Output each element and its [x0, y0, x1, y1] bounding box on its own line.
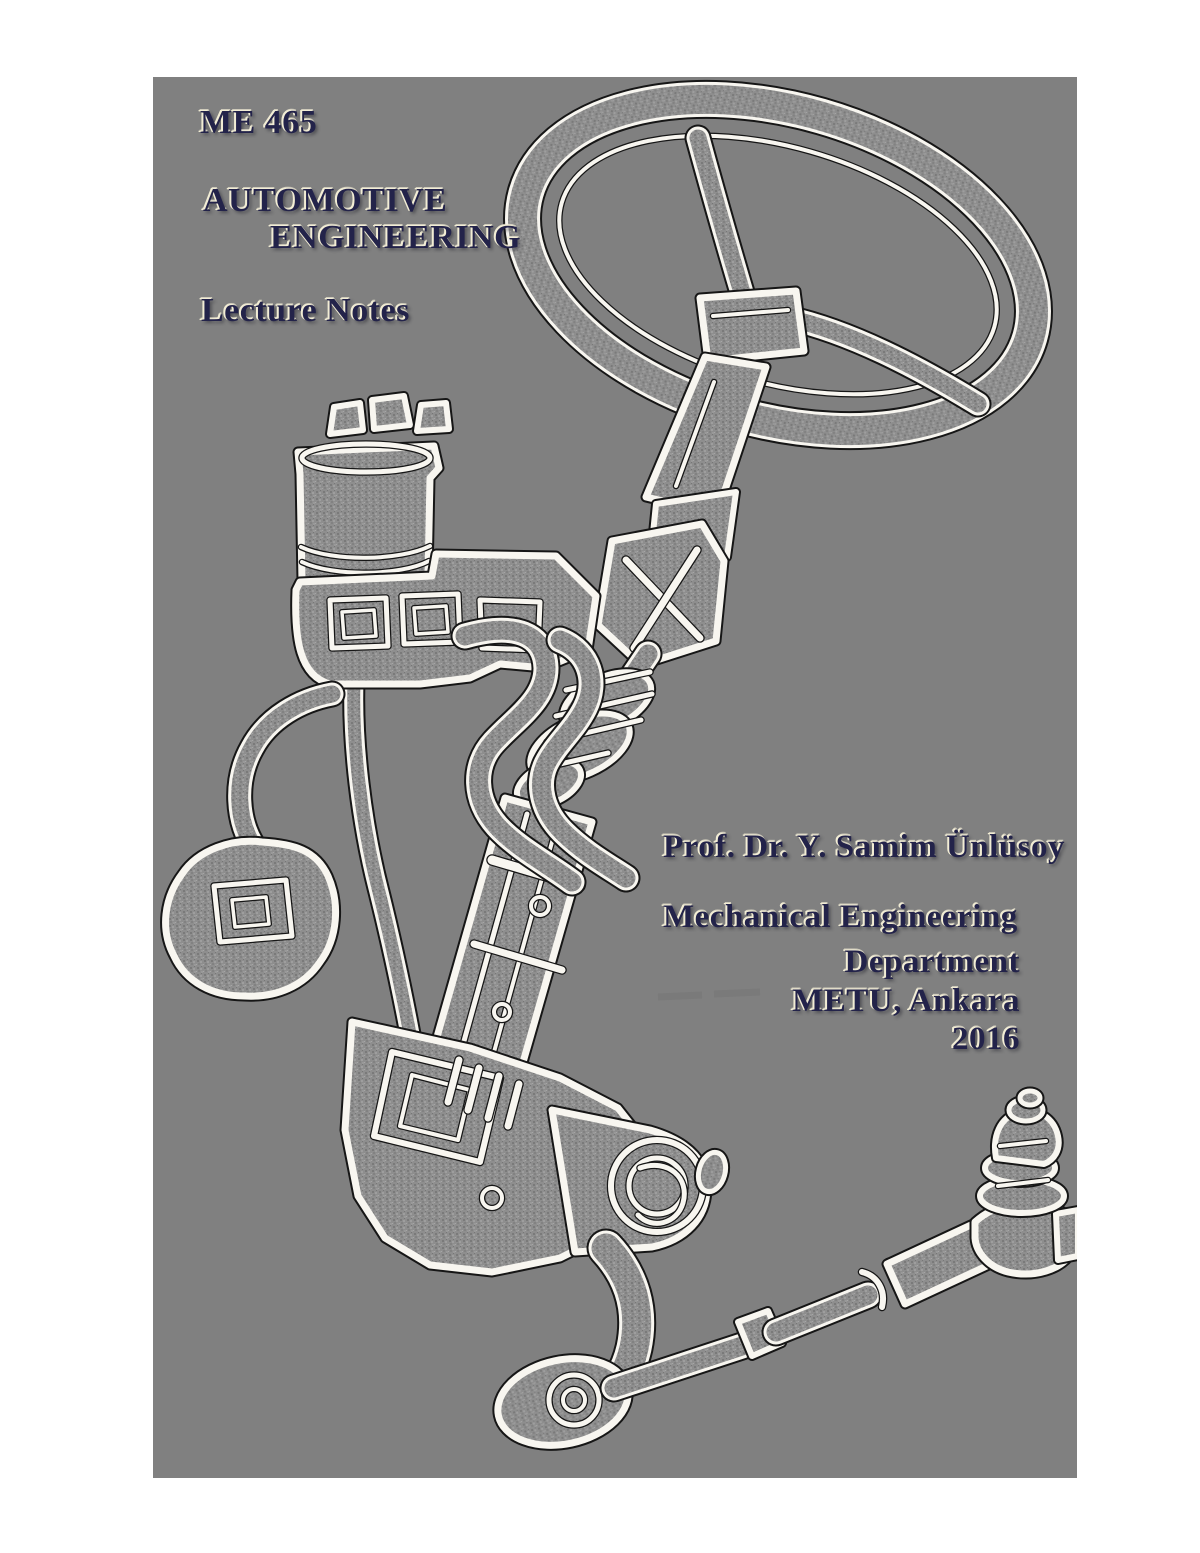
- course-code: ME 465: [200, 106, 317, 140]
- steering-system-illustration: [153, 77, 1077, 1478]
- institution: METU, Ankara: [792, 985, 1020, 1018]
- year: 2016: [952, 1023, 1020, 1056]
- title-line-1: AUTOMOTIVE: [203, 184, 447, 218]
- author: Prof. Dr. Y. Samim Ünlüsoy: [663, 831, 1065, 864]
- department-line-2: Department: [845, 946, 1020, 979]
- cover-panel: ME 465 AUTOMOTIVE ENGINEERING Lecture No…: [153, 77, 1077, 1478]
- department-line-1: Mechanical Engineering: [663, 901, 1018, 934]
- title-line-2: ENGINEERING: [270, 221, 521, 255]
- subtitle: Lecture Notes: [201, 294, 410, 328]
- cover-page: ME 465 AUTOMOTIVE ENGINEERING Lecture No…: [0, 0, 1200, 1553]
